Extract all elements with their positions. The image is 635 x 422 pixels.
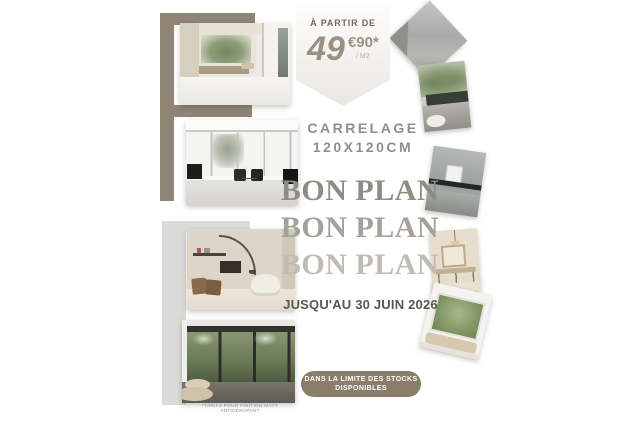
price-prefix-label: À PARTIR DE [296, 18, 390, 28]
photo4-left-wall [182, 320, 187, 383]
bon-plan-line-1: BON PLAN [280, 172, 440, 209]
photo4-sky-patch-2 [254, 332, 277, 344]
price-row: 49 €90* / M2 [296, 32, 390, 66]
product-title: CARRELAGE 120X120CM [288, 119, 438, 157]
price-side: €90* / M2 [348, 35, 379, 60]
bon-plan-line-2: BON PLAN [280, 209, 440, 246]
taupe-bar-arm-middle [160, 105, 252, 117]
deadline-text: JUSQU'AU 30 JUIN 2026 [283, 297, 438, 312]
product-title-line2: 120X120CM [288, 138, 438, 157]
photo-green-window-room [419, 282, 492, 360]
photo7-pendant-cord [454, 230, 456, 241]
bon-plan-block: BON PLAN BON PLAN BON PLAN [280, 172, 440, 283]
photo1-tree [201, 35, 252, 63]
footnote-text: *TARIFS POUR FINITION MATT ANTIDÉRAPANT [186, 404, 295, 414]
bon-plan-line-3: BON PLAN [280, 246, 440, 283]
photo3-white-armchair [251, 274, 280, 296]
stock-limit-pill: DANS LA LIMITE DES STOCKS DISPONIBLES [301, 371, 421, 397]
photo3-decor-object-2 [204, 248, 209, 254]
photo3-decor-object [197, 248, 201, 253]
photo1-cushion [241, 63, 254, 69]
photo2-fireplace [187, 164, 202, 178]
photo2-tree [211, 134, 245, 168]
price-amount: 49 [307, 32, 345, 66]
photo-beige-living-room-arc-lamp [187, 229, 295, 310]
photo3-arc-lamp [219, 235, 256, 274]
stock-limit-line2: DISPONIBLES [301, 384, 421, 393]
photo4-sky-patch [193, 333, 213, 345]
tile-sample-fold [390, 21, 425, 56]
photo3-lamp-shade [249, 270, 257, 274]
photo7-mirror [440, 244, 466, 268]
price-per-unit: / M2 [348, 53, 379, 60]
photo-glass-wall-palm-view [182, 320, 295, 403]
photo3-wood-chair-right [206, 279, 222, 295]
product-title-line1: CARRELAGE [288, 119, 438, 138]
photo-courtyard-room-with-tree-view [180, 23, 290, 105]
price-badge-ribbon: À PARTIR DE 49 €90* / M2 [296, 6, 390, 106]
price-cents: €90* [348, 35, 379, 50]
photo2-coffee-table [242, 178, 257, 180]
flyer-canvas: À PARTIR DE 49 €90* / M2 CARRELAGE 120X1… [0, 0, 635, 422]
photo1-left-wall [180, 23, 199, 77]
photo1-glass-door [278, 28, 288, 82]
photo1-floor-tiles [180, 77, 290, 105]
stock-limit-line1: DANS LA LIMITE DES STOCKS [301, 375, 421, 384]
